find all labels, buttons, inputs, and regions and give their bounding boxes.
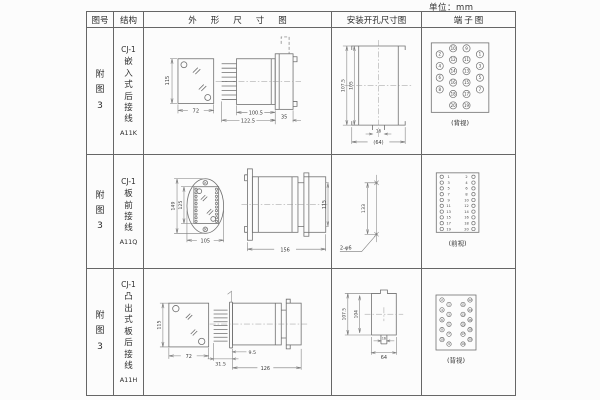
terminal-number: 7	[448, 332, 450, 336]
model-label: CJ-1	[121, 177, 136, 186]
outline-svg-row3: 115 72 31.5	[144, 269, 331, 395]
terminal-circle	[440, 227, 443, 230]
terminal-drawing-row1: (背视) 2468101214161820911131517191357	[422, 28, 515, 155]
dim-pin-depth: 31.5	[208, 343, 239, 370]
dim-hole-spacing: 133	[361, 183, 375, 234]
dim-side-length: 126	[233, 349, 302, 372]
terminal-number: 20	[464, 227, 469, 231]
terminal-number: 5	[448, 187, 450, 191]
hole-note: 2-φ6	[340, 236, 376, 252]
terminal-number: 6	[465, 187, 468, 191]
header-structure: 结构	[114, 12, 144, 28]
dim-label: 35	[281, 114, 287, 120]
terminal-number: 14	[451, 69, 457, 74]
terminal-number: 5	[479, 75, 482, 80]
terminal-circle	[440, 210, 443, 213]
terminal-number: 17	[446, 221, 451, 225]
terminal-circle	[195, 220, 197, 222]
terminal-number: 3	[479, 63, 482, 68]
terminal-circle	[195, 202, 197, 204]
dim-label: 156	[280, 247, 289, 253]
terminal-number: 18	[451, 91, 457, 96]
terminal-number: 16	[464, 216, 469, 220]
mounting-drawing-row2: 133 2-φ6	[332, 155, 422, 269]
terminal-svg-row3: (背视) 2143658710912111413161518172019	[422, 269, 515, 395]
terminal-number: 3	[448, 181, 450, 185]
dim-label: 104	[354, 310, 360, 319]
dim-front-width: 72	[169, 348, 209, 360]
terminal-svg-row1: (背视) 2468101214161820911131517191357	[422, 28, 515, 154]
dim-label: 133	[361, 204, 367, 213]
dim-label: 64	[381, 355, 387, 361]
terminal-circle	[440, 187, 443, 190]
mounting-svg-row3: 107.5 104 16 64	[332, 269, 421, 395]
terminal-number: 17	[464, 91, 470, 96]
dim-inner-height: 104	[354, 295, 361, 333]
dim-label: 107.5	[340, 79, 346, 92]
outline-drawing-row2: 149 125 105	[144, 155, 332, 269]
terminal-circle	[472, 227, 475, 230]
dim-label: 105	[201, 239, 210, 245]
type-code: A11H	[120, 376, 138, 384]
terminal-number: 9	[465, 46, 468, 51]
dim-label: (64)	[373, 140, 383, 146]
document-page: 单位：mm 图号 结构 外形尺寸图 安装开孔尺寸图 端子图 附 图 3 CJ-1…	[0, 0, 600, 400]
header-terminal: 端子图	[422, 12, 515, 28]
terminal-circle	[195, 195, 197, 197]
terminal-number: 6	[438, 75, 441, 80]
model-label: CJ-1	[121, 45, 136, 54]
terminal-number: 12	[451, 57, 457, 62]
mounting-drawing-row3: 107.5 104 16 64	[332, 269, 422, 395]
dim-label: 126	[261, 366, 270, 372]
drawing-table: 图号 结构 外形尺寸图 安装开孔尺寸图 端子图 附 图 3 CJ-1 嵌 入 式…	[86, 11, 516, 396]
terminal-number: 10	[451, 46, 457, 51]
terminal-circle	[215, 188, 217, 190]
terminal-circle	[195, 199, 197, 201]
terminal-circle	[195, 206, 197, 208]
handle-clip	[281, 37, 289, 54]
terminal-circle	[215, 213, 217, 215]
terminal-number: 11	[464, 57, 470, 62]
terminal-circle	[195, 217, 197, 219]
terminal-circle	[440, 204, 443, 207]
terminal-circle	[472, 210, 475, 213]
outline-drawing-row3: 115 72 31.5	[144, 269, 332, 395]
header-outline: 外形尺寸图	[144, 12, 332, 28]
dim-inner-height: 105	[348, 46, 355, 125]
terminal-circle	[215, 210, 217, 212]
terminal-number: 13	[464, 69, 470, 74]
view-caption: (背视)	[447, 356, 465, 365]
terminal-number: 20	[468, 338, 472, 342]
terminal-number: 11	[461, 303, 465, 307]
terminal-circle	[440, 181, 443, 184]
outline-svg-row1: 115 72 100.5	[144, 28, 331, 154]
terminal-number: 17	[461, 332, 465, 336]
structure-row3: CJ-1 凸 出 式 板 后 接 线 A11H	[114, 269, 144, 395]
dim-label: 100.5	[249, 111, 263, 117]
view-caption: (背视)	[451, 118, 469, 127]
mounting-svg-row2: 133 2-φ6	[332, 155, 421, 268]
fig-no-row3: 附 图 3	[87, 269, 114, 395]
terminal-number: 14	[464, 210, 469, 214]
terminal-circle	[440, 222, 443, 225]
mounting-drawing-row1: 107.5 105 16 (64)	[332, 28, 422, 155]
terminal-number: 6	[441, 318, 443, 322]
terminal-number: 1	[448, 303, 450, 307]
dim-front-height: 115	[165, 59, 177, 104]
terminal-number: 9	[448, 342, 450, 346]
dim-label: 107.5	[342, 308, 348, 321]
terminal-number: 19	[464, 103, 470, 108]
relay-front-view	[178, 59, 214, 104]
terminal-number: 7	[448, 192, 450, 196]
terminal-number: 12	[464, 204, 469, 208]
terminal-number: 2	[438, 52, 441, 57]
terminal-number: 1	[448, 175, 450, 179]
terminal-number: 4	[438, 63, 441, 68]
terminal-circle	[472, 204, 475, 207]
terminal-circle	[215, 192, 217, 194]
handle-clip	[228, 291, 232, 302]
dim-flange-offset: 9.5	[233, 350, 257, 356]
terminal-number: 13	[446, 210, 451, 214]
terminal-circle	[215, 220, 217, 222]
centerlines	[345, 40, 412, 139]
structure-label: 凸 出 式 板 后 接 线	[124, 292, 133, 372]
terminal-number: 9	[448, 198, 450, 202]
terminal-number: 10	[440, 338, 444, 342]
terminal-number: 5	[448, 322, 450, 326]
dim-label: 149	[170, 202, 176, 211]
relay-front-view	[169, 303, 209, 347]
relay-side-view	[241, 169, 328, 240]
terminal-number: 15	[446, 216, 451, 220]
terminal-circle	[215, 217, 217, 219]
terminal-circle	[215, 206, 217, 208]
terminal-number: 1	[479, 52, 482, 57]
terminal-number: 16	[468, 318, 472, 322]
terminal-number: 4	[465, 181, 468, 185]
dim-label: 9.5	[248, 350, 256, 356]
centerlines	[365, 307, 404, 321]
outline-svg-row2: 149 125 105	[144, 155, 331, 268]
terminal-number: 15	[461, 322, 465, 326]
terminal-number: 8	[438, 87, 441, 92]
terminal-number: 11	[446, 204, 451, 208]
structure-label: 板 前 接 线	[124, 189, 133, 235]
mounting-svg-row1: 107.5 105 16 (64)	[332, 28, 421, 154]
terminal-number: 8	[465, 192, 468, 196]
dim-label: 115	[322, 200, 328, 209]
terminal-circle	[440, 198, 443, 201]
terminal-circle	[472, 187, 475, 190]
fig-no-row1: 附 图 3	[87, 28, 114, 155]
terminal-number: 14	[468, 308, 472, 312]
dim-label: 31.5	[215, 361, 226, 367]
terminal-circle	[472, 175, 475, 178]
terminal-number: 2	[465, 175, 467, 179]
type-code: A11K	[120, 129, 137, 137]
dim-label: 105	[348, 81, 354, 90]
dim-front-inner-height: 125	[178, 187, 194, 224]
header-fig-no: 图号	[87, 12, 114, 28]
terminal-number: 13	[461, 312, 465, 316]
dim-front-width: 72	[178, 104, 214, 114]
terminal-circle	[440, 216, 443, 219]
dim-label: 125	[178, 201, 184, 210]
terminal-circle	[195, 210, 197, 212]
terminal-number: 19	[461, 342, 465, 346]
terminal-number: 12	[468, 298, 472, 302]
dim-front-height: 115	[157, 303, 169, 347]
dim-label: 115	[157, 320, 163, 329]
dim-slot-width: 16	[374, 337, 395, 342]
terminal-circle	[195, 188, 197, 190]
structure-row2: CJ-1 板 前 接 线 A11Q	[114, 155, 144, 269]
dim-label: 72	[193, 109, 200, 115]
view-caption: (前视)	[449, 239, 467, 248]
terminal-circle	[215, 199, 217, 201]
dim-label: 72	[186, 354, 192, 360]
outline-drawing-row1: 115 72 100.5	[144, 28, 332, 155]
terminal-number: 18	[464, 221, 469, 225]
terminal-number: 20	[451, 103, 457, 108]
terminal-number: 15	[464, 80, 470, 85]
terminal-circle	[472, 181, 475, 184]
terminal-drawing-row2: (前视) 1357911131517192468101214161820	[422, 155, 515, 269]
terminal-block-outline	[436, 173, 479, 232]
terminal-svg-row2: (前视) 1357911131517192468101214161820	[422, 155, 515, 268]
terminal-circle	[472, 222, 475, 225]
terminal-circle	[195, 192, 197, 194]
type-code: A11Q	[120, 238, 138, 246]
dim-overall-width: 64	[372, 337, 397, 361]
dim-label: 115	[165, 76, 171, 85]
dim-front-width: 105	[187, 211, 224, 245]
terminal-circle	[440, 193, 443, 196]
terminal-number: 19	[446, 227, 451, 231]
dim-label: 16	[382, 337, 386, 341]
terminal-number: 8	[441, 328, 443, 332]
dim-label: 16	[376, 129, 382, 134]
terminal-drawing-row3: (背视) 2143658710912111413161518172019	[422, 269, 515, 395]
dim-side-length: 156	[247, 234, 325, 253]
dim-side-height: 115	[322, 183, 329, 227]
hole-note-label: 2-φ6	[340, 246, 352, 252]
terminal-number: 7	[479, 87, 482, 92]
terminal-circle	[215, 202, 217, 204]
structure-label: 嵌 入 式 后 接 线	[124, 57, 133, 126]
relay-side-view	[210, 291, 307, 349]
header-mounting: 安装开孔尺寸图	[332, 12, 422, 28]
terminal-circle	[472, 198, 475, 201]
terminal-circle	[472, 193, 475, 196]
relay-side-view	[216, 37, 301, 109]
terminal-circle	[195, 213, 197, 215]
terminal-circle	[440, 175, 443, 178]
dim-label: 122.5	[241, 118, 255, 124]
terminal-circle	[472, 216, 475, 219]
terminal-number: 2	[441, 298, 443, 302]
terminal-number: 3	[448, 312, 450, 316]
terminal-number: 16	[451, 80, 457, 85]
terminal-number: 10	[464, 198, 469, 202]
terminal-number: 18	[468, 328, 472, 332]
model-label: CJ-1	[121, 280, 136, 289]
fig-no-row2: 附 图 3	[87, 155, 114, 269]
terminal-number: 4	[441, 308, 443, 312]
structure-row1: CJ-1 嵌 入 式 后 接 线 A11K	[114, 28, 144, 155]
terminal-circle	[215, 195, 217, 197]
